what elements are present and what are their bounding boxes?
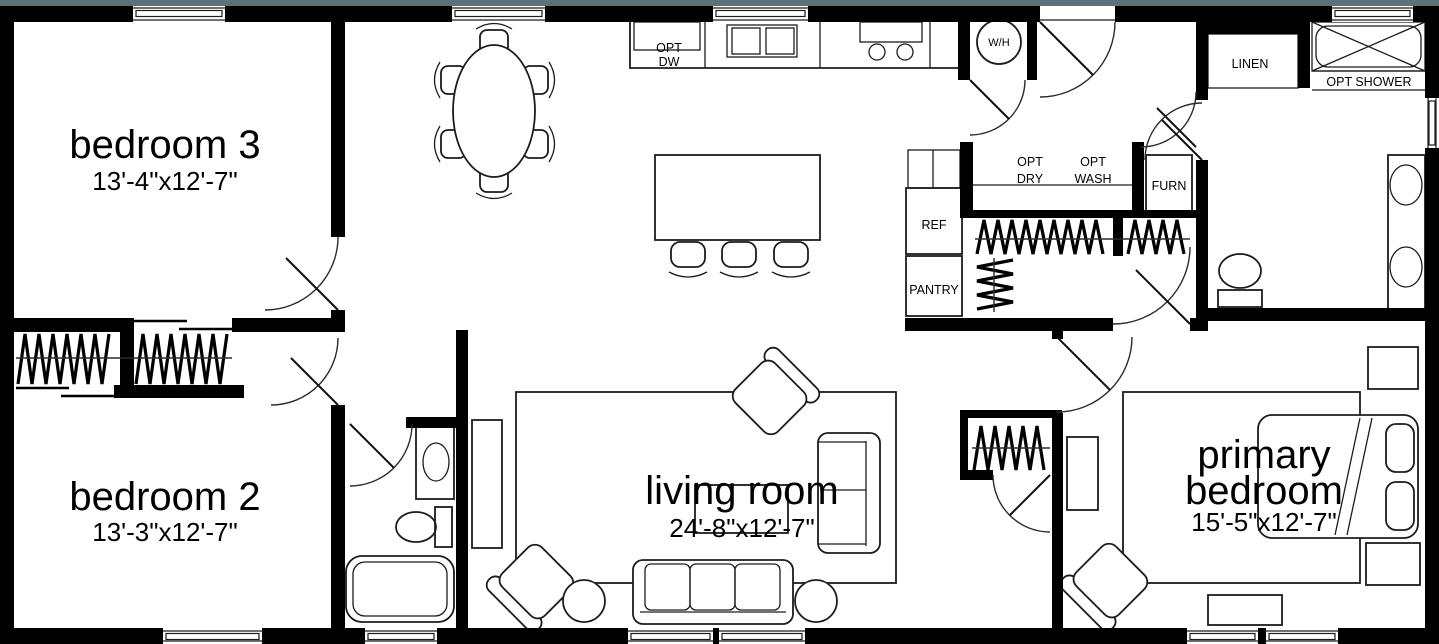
- living-room-dims: 24'-8"x12'-7": [669, 513, 814, 543]
- dresser-left: [1067, 437, 1098, 510]
- dining-table: [453, 45, 535, 177]
- opt-wash-label-1: OPT: [1080, 155, 1106, 169]
- bedroom2-label: bedroom 2: [69, 475, 260, 519]
- pantry-label: PANTRY: [909, 283, 959, 297]
- furnace-label: FURN: [1152, 179, 1187, 193]
- pillow-1: [1386, 424, 1414, 472]
- bedroom2-dims: 13'-3"x12'-7": [92, 517, 237, 547]
- water-heater-label: W/H: [988, 37, 1009, 49]
- opt-wash-label-2: WASH: [1074, 172, 1111, 186]
- living-room-label: living room: [645, 469, 838, 513]
- back-door-opening: [1040, 6, 1115, 22]
- window-primary-1: [1187, 628, 1258, 644]
- nightstand-top: [1368, 347, 1418, 389]
- window-bedroom3: [133, 6, 225, 22]
- top-accent-band: [0, 0, 1439, 6]
- window-kitchen-sink: [713, 6, 808, 22]
- window-primary-bath: [1332, 6, 1413, 22]
- nightstand-bottom: [1366, 543, 1420, 585]
- pillow-2: [1386, 482, 1414, 530]
- floor-plan-page: bedroom 3 13'-4"x12'-7" bedroom 2 13'-3"…: [0, 0, 1439, 644]
- opt-dw-label-2: DW: [659, 55, 680, 69]
- opt-dw-label-1: OPT: [656, 41, 682, 55]
- window-bedroom2: [163, 628, 262, 644]
- refrigerator-label: REF: [922, 218, 947, 232]
- media-console: [472, 420, 502, 548]
- opt-shower-label: OPT SHOWER: [1326, 75, 1411, 89]
- opt-dry-label-1: OPT: [1017, 155, 1043, 169]
- floor-plan-svg: bedroom 3 13'-4"x12'-7" bedroom 2 13'-3"…: [0, 0, 1439, 644]
- window-right-bath: [1425, 98, 1439, 148]
- window-living-1: [628, 628, 713, 644]
- sofa: [633, 560, 793, 624]
- window-primary-2: [1266, 628, 1338, 644]
- window-living-2: [719, 628, 805, 644]
- bedroom3-dims: 13'-4"x12'-7": [92, 166, 237, 196]
- end-table-left: [563, 580, 605, 622]
- bedroom3-label: bedroom 3: [69, 123, 260, 167]
- linen-label: LINEN: [1232, 57, 1269, 71]
- primary-dims: 15'-5"x12'-7": [1191, 507, 1336, 537]
- dresser-bottom: [1208, 595, 1282, 625]
- window-hall-bath: [365, 628, 437, 644]
- kitchen-island: [655, 155, 820, 277]
- opt-dry-label-2: DRY: [1017, 172, 1044, 186]
- window-dining: [452, 6, 545, 22]
- end-table-right: [795, 580, 837, 622]
